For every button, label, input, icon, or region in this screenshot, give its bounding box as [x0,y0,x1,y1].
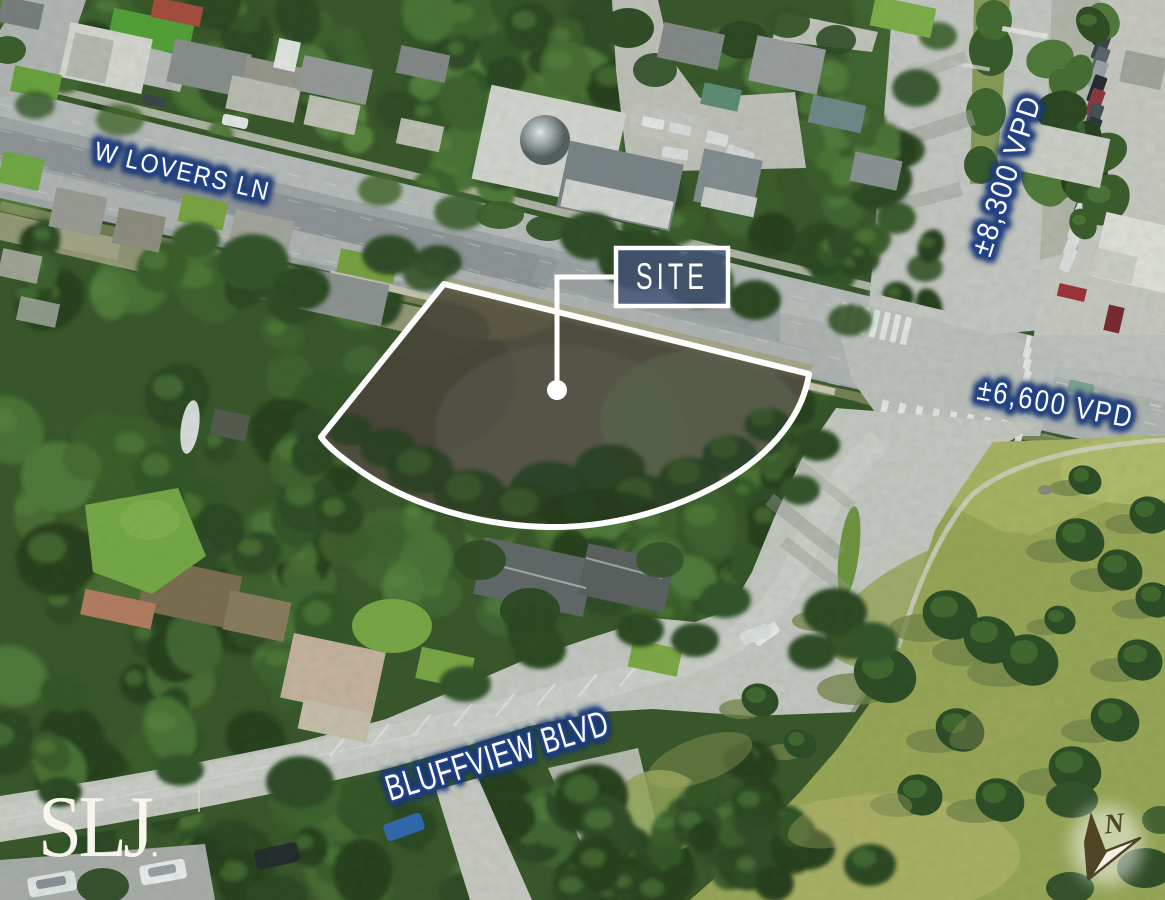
svg-text:SITE: SITE [636,255,708,297]
svg-text:SLJ.: SLJ. [38,778,157,876]
